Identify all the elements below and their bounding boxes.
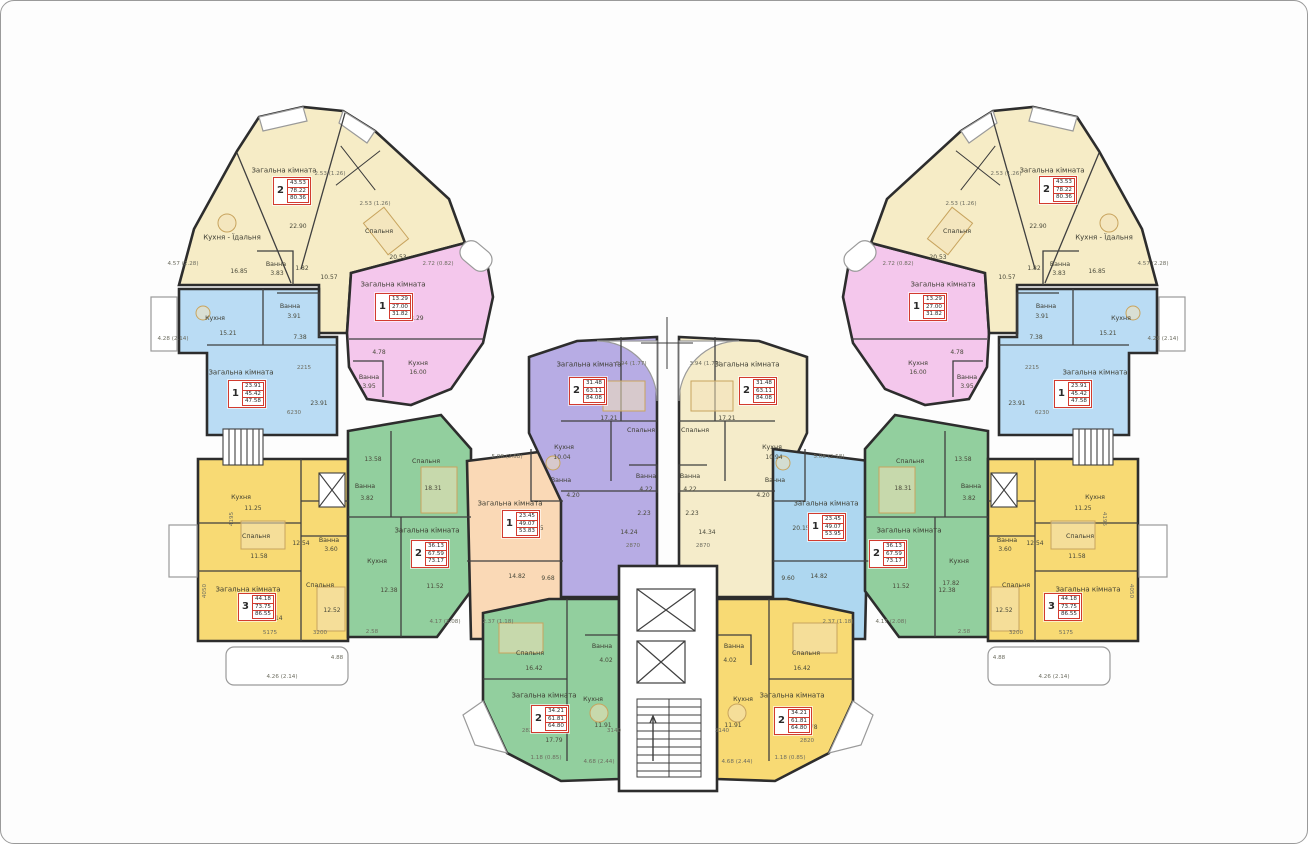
dimension-label: 2215 <box>1025 366 1039 372</box>
room-label: Загальна кімната <box>876 528 941 535</box>
room-label: Кухня - Їдальня <box>203 235 261 242</box>
dimension-label: 6230 <box>287 411 301 417</box>
area-label: 12.54 <box>292 541 309 547</box>
area-label: 3.91 <box>287 314 300 320</box>
apartment-rooms-count: 2 <box>275 179 286 203</box>
room-label: Кухня <box>908 361 928 367</box>
apartment-areas: 34.2161.8164.80 <box>545 707 567 731</box>
area-label: 16.00 <box>409 370 426 376</box>
apartment-info-box: 344.1873.7586.55 <box>238 593 276 621</box>
room-label: Ванна <box>280 304 300 310</box>
area-label: 3.82 <box>360 496 373 502</box>
area-label: 14.82 <box>508 574 525 580</box>
dimension-label: 3.94 (1.77) <box>689 362 720 368</box>
apartment-rooms-count: 1 <box>504 512 515 536</box>
area-label: 3.83 <box>270 271 283 277</box>
area-label: 15.21 <box>1099 331 1116 337</box>
room-label: Ванна <box>957 375 977 381</box>
room-label: Спальня <box>792 651 820 657</box>
area-label: 16.42 <box>793 666 810 672</box>
apartment-info-box: 231.4863.1184.08 <box>739 377 777 405</box>
area-label: 10.57 <box>998 275 1015 281</box>
area-label: 2.23 <box>685 511 698 517</box>
dimension-label: 5175 <box>1059 631 1073 637</box>
area-label: 4.78 <box>372 350 385 356</box>
room-label: Ванна <box>266 262 286 268</box>
apartment-info-box: 123.9145.4247.58 <box>228 380 266 408</box>
dimension-label: 6230 <box>1035 411 1049 417</box>
area-label: 11.25 <box>1074 506 1091 512</box>
apartment-rooms-count: 2 <box>1041 178 1052 202</box>
room-label: Кухня <box>733 697 753 703</box>
apartment-areas: 23.9145.4247.58 <box>242 382 264 406</box>
apartment-rooms-count: 3 <box>1046 595 1057 619</box>
dimension-label: 4.17 (2.08) <box>875 620 906 626</box>
room-label: Кухня <box>408 361 428 367</box>
apartment-rooms-count: 2 <box>776 709 787 733</box>
dimension-label: 4.57 (2.28) <box>167 262 198 268</box>
apartment-info-box: 123.4549.0753.95 <box>808 513 846 541</box>
area-label: 3.83 <box>1052 271 1065 277</box>
area-label: 13.58 <box>954 457 971 463</box>
apartment-rooms-count: 1 <box>230 382 241 406</box>
dimension-label: 4195 <box>1100 512 1106 526</box>
room-label: Ванна <box>359 375 379 381</box>
room-label: Спальня <box>1066 534 1094 540</box>
apartment-area-value: 53.95 <box>822 530 844 539</box>
room-label: Спальня <box>306 583 334 589</box>
apartment-info-box: 113.2927.0031.82 <box>375 293 413 321</box>
room-label: Кухня <box>554 445 574 451</box>
apartment-rooms-count: 2 <box>533 707 544 731</box>
area-label: 12.52 <box>323 608 340 614</box>
area-label: 23.91 <box>1008 401 1025 407</box>
area-label: 16.85 <box>230 269 247 275</box>
apartment-rooms-count: 2 <box>871 542 882 566</box>
floor-plan-canvas: Загальна кімнатаКухня - ЇдальняСпальня16… <box>0 0 1308 844</box>
dimension-label: 5175 <box>263 631 277 637</box>
room-label: Ванна <box>355 484 375 490</box>
dimension-label: 2.53 (1.26) <box>990 172 1021 178</box>
apartment-areas: 23.4549.0753.83 <box>516 512 538 536</box>
room-label: Спальня <box>1002 583 1030 589</box>
apartment-area-value: 84.08 <box>583 394 605 403</box>
area-label: 11.52 <box>426 584 443 590</box>
apartment-info-box: 113.2927.0031.82 <box>909 293 947 321</box>
dimension-label: 3200 <box>313 631 327 637</box>
area-label: 20.53 <box>929 255 946 261</box>
apartment-area-value: 47.58 <box>1068 397 1090 406</box>
apartment-info-box: 236.1367.5973.17 <box>411 540 449 568</box>
apartment-area-value: 80.36 <box>287 194 309 203</box>
area-label: 22.90 <box>289 224 306 230</box>
room-label: Ванна <box>961 484 981 490</box>
dimension-label: 5.08 (2.58) <box>491 455 522 461</box>
apartment-areas: 36.1367.5973.17 <box>883 542 905 566</box>
apartment-area-value: 64.80 <box>545 722 567 731</box>
area-label: 4.22 <box>683 487 696 493</box>
area-label: 4.02 <box>723 658 736 664</box>
area-label: 16.85 <box>1088 269 1105 275</box>
apartment-rooms-count: 1 <box>1056 382 1067 406</box>
area-label: 3.60 <box>998 547 1011 553</box>
dimension-label: 4.26 (2.14) <box>266 675 297 681</box>
room-label: Спальня <box>896 459 924 465</box>
room-label: Загальна кімната <box>511 693 576 700</box>
room-label: Загальна кімната <box>360 282 425 289</box>
apartment-areas: 31.4863.1184.08 <box>583 379 605 403</box>
room-label: Ванна <box>997 538 1017 544</box>
dimension-label: 2.58 <box>958 630 970 636</box>
dimension-label: 2870 <box>626 544 640 550</box>
area-label: 18.31 <box>424 486 441 492</box>
room-label: Кухня <box>1111 316 1131 322</box>
apartment-area-value: 31.82 <box>389 310 411 319</box>
apartment-info-box: 234.2161.8164.80 <box>774 707 812 735</box>
apartment-info-box: 231.4863.1184.08 <box>569 377 607 405</box>
area-label: 16.00 <box>909 370 926 376</box>
dimension-label: 2.37 (1.18) <box>482 620 513 626</box>
apartment-area-value: 86.55 <box>1058 610 1080 619</box>
area-label: 16.42 <box>525 666 542 672</box>
area-label: 1.82 <box>295 266 308 272</box>
room-label: Ванна <box>1036 304 1056 310</box>
apartment-area-value: 64.80 <box>788 724 810 733</box>
dimension-label: 4050 <box>1127 584 1133 598</box>
area-label: 12.38 <box>380 588 397 594</box>
room-label: Кухня - Їдальня <box>1075 235 1133 242</box>
dimension-label: 4.88 <box>331 656 343 662</box>
room-label: Спальня <box>242 534 270 540</box>
area-label: 11.25 <box>244 506 261 512</box>
dimension-label: 2.53 (1.26) <box>359 202 390 208</box>
room-label: Кухня <box>583 697 603 703</box>
dimension-label: 4.68 (2.44) <box>721 760 752 766</box>
dimension-label: 3200 <box>1009 631 1023 637</box>
room-label: Ванна <box>765 478 785 484</box>
area-label: 3.82 <box>962 496 975 502</box>
room-label: Загальна кімната <box>477 501 542 508</box>
room-label: Спальня <box>681 428 709 434</box>
apartment-info-box: 234.2161.8164.80 <box>531 705 569 733</box>
apartment-areas: 44.1873.7586.55 <box>252 595 274 619</box>
area-label: 10.94 <box>765 455 782 461</box>
dimension-label: 2870 <box>696 544 710 550</box>
area-label: 22.90 <box>1029 224 1046 230</box>
room-label: Загальна кімната <box>910 282 975 289</box>
area-label: 17.21 <box>718 416 735 422</box>
apartment-areas: 23.4549.0753.95 <box>822 515 844 539</box>
apartment-info-box: 243.5378.2280.36 <box>1039 176 1077 204</box>
room-label: Кухня <box>1085 495 1105 501</box>
room-label: Спальня <box>412 459 440 465</box>
room-label: Кухня <box>205 316 225 322</box>
apartment-rooms-count: 3 <box>240 595 251 619</box>
room-label: Загальна кімната <box>1062 370 1127 377</box>
room-label: Кухня <box>231 495 251 501</box>
apartment-areas: 31.4863.1184.08 <box>753 379 775 403</box>
room-label: Спальня <box>516 651 544 657</box>
dimension-label: 1.18 (0.85) <box>774 756 805 762</box>
area-label: 1.82 <box>1027 266 1040 272</box>
room-label: Загальна кімната <box>251 168 316 175</box>
dimension-label: 4050 <box>203 584 209 598</box>
area-label: 12.54 <box>1026 541 1043 547</box>
apartment-areas: 44.1873.7586.55 <box>1058 595 1080 619</box>
room-label: Ванна <box>592 644 612 650</box>
room-label: Ванна <box>724 644 744 650</box>
apartment-area-value: 47.58 <box>242 397 264 406</box>
area-label: 3.60 <box>324 547 337 553</box>
dimension-label: 4.26 (2.14) <box>1038 675 1069 681</box>
apartment-rooms-count: 1 <box>810 515 821 539</box>
apartment-areas: 43.5378.2280.36 <box>1053 178 1075 202</box>
room-label: Кухня <box>949 559 969 565</box>
apartment-area-value: 84.08 <box>753 394 775 403</box>
apartment-rooms-count: 1 <box>377 295 388 319</box>
area-label: 2.23 <box>637 511 650 517</box>
area-label: 3.95 <box>960 384 973 390</box>
apartment-info-box: 243.5378.2280.36 <box>273 177 311 205</box>
area-label: 3.91 <box>1035 314 1048 320</box>
area-label: 17.82 <box>942 581 959 587</box>
apartment-info-box: 344.1873.7586.55 <box>1044 593 1082 621</box>
area-label: 10.04 <box>553 455 570 461</box>
dimension-label: 3140 <box>607 729 621 735</box>
area-label: 23.91 <box>310 401 327 407</box>
room-label: Загальна кімната <box>714 362 779 369</box>
room-label: Ванна <box>551 478 571 484</box>
apartment-areas: 43.5378.2280.36 <box>287 179 309 203</box>
dimension-label: 3.94 (1.77) <box>615 362 646 368</box>
area-label: 11.52 <box>892 584 909 590</box>
dimension-label: 1.18 (0.85) <box>530 756 561 762</box>
area-label: 7.38 <box>1029 335 1042 341</box>
area-label: 12.38 <box>938 588 955 594</box>
apartment-areas: 23.9145.4247.58 <box>1068 382 1090 406</box>
apartment-rooms-count: 2 <box>571 379 582 403</box>
dimension-label: 2.37 (1.18) <box>822 620 853 626</box>
area-label: 20.53 <box>389 255 406 261</box>
dimension-label: 2215 <box>297 366 311 372</box>
area-label: 15.21 <box>219 331 236 337</box>
room-label: Загальна кімната <box>556 362 621 369</box>
dimension-label: 4.28 (2.14) <box>157 337 188 343</box>
dimension-label: 4.17 (2.08) <box>429 620 460 626</box>
area-label: 4.20 <box>756 493 769 499</box>
apartment-area-value: 53.83 <box>516 527 538 536</box>
area-label: 4.78 <box>950 350 963 356</box>
room-label: Загальна кімната <box>759 693 824 700</box>
dimension-label: 2.72 (0.82) <box>882 262 913 268</box>
dimension-label: 5.08 (2.58) <box>813 455 844 461</box>
area-label: 14.24 <box>620 530 637 536</box>
area-label: 11.58 <box>250 554 267 560</box>
apartment-area-value: 73.17 <box>883 557 905 566</box>
room-label: Кухня <box>762 445 782 451</box>
dimension-label: 4.68 (2.44) <box>583 760 614 766</box>
room-label: Загальна кімната <box>793 501 858 508</box>
apartment-area-value: 80.36 <box>1053 193 1075 202</box>
dimension-label: 2.53 (1.26) <box>945 202 976 208</box>
apartment-area-value: 73.17 <box>425 557 447 566</box>
area-label: 11.58 <box>1068 554 1085 560</box>
apartment-area-value: 86.55 <box>252 610 274 619</box>
apartment-areas: 36.1367.5973.17 <box>425 542 447 566</box>
room-label: Ванна <box>1050 262 1070 268</box>
apartment-info-box: 123.4549.0753.83 <box>502 510 540 538</box>
room-label: Ванна <box>319 538 339 544</box>
area-label: 4.20 <box>566 493 579 499</box>
area-label: 17.21 <box>600 416 617 422</box>
room-label: Ванна <box>680 474 700 480</box>
area-label: 14.34 <box>698 530 715 536</box>
room-label: Спальня <box>627 428 655 434</box>
area-label: 9.68 <box>541 576 554 582</box>
area-label: 9.60 <box>781 576 794 582</box>
dimension-label: 3140 <box>715 729 729 735</box>
apartment-rooms-count: 1 <box>911 295 922 319</box>
labels-layer: Загальна кімнатаКухня - ЇдальняСпальня16… <box>1 1 1307 843</box>
apartment-area-value: 31.82 <box>923 310 945 319</box>
apartment-info-box: 123.9145.4247.58 <box>1054 380 1092 408</box>
room-label: Кухня <box>367 559 387 565</box>
room-label: Загальна кімната <box>208 370 273 377</box>
room-label: Ванна <box>636 474 656 480</box>
dimension-label: 4.88 <box>993 656 1005 662</box>
dimension-label: 4.57 (2.28) <box>1137 262 1168 268</box>
apartment-rooms-count: 2 <box>741 379 752 403</box>
room-label: Загальна кімната <box>1019 168 1084 175</box>
dimension-label: 2.58 <box>366 630 378 636</box>
area-label: 14.82 <box>810 574 827 580</box>
apartment-areas: 13.2927.0031.82 <box>923 295 945 319</box>
room-label: Спальня <box>365 229 393 235</box>
area-label: 18.31 <box>894 486 911 492</box>
area-label: 17.79 <box>545 738 562 744</box>
apartment-rooms-count: 2 <box>413 542 424 566</box>
dimension-label: 4.28 (2.14) <box>1147 337 1178 343</box>
dimension-label: 2820 <box>800 739 814 745</box>
area-label: 4.02 <box>599 658 612 664</box>
room-label: Загальна кімната <box>394 528 459 535</box>
apartment-areas: 13.2927.0031.82 <box>389 295 411 319</box>
area-label: 13.58 <box>364 457 381 463</box>
room-label: Спальня <box>943 229 971 235</box>
dimension-label: 2.53 (1.26) <box>314 172 345 178</box>
dimension-label: 2.72 (0.82) <box>422 262 453 268</box>
area-label: 3.95 <box>362 384 375 390</box>
area-label: 12.52 <box>995 608 1012 614</box>
area-label: 4.22 <box>639 487 652 493</box>
apartment-areas: 34.2161.8164.80 <box>788 709 810 733</box>
area-label: 7.38 <box>293 335 306 341</box>
apartment-info-box: 236.1367.5973.17 <box>869 540 907 568</box>
dimension-label: 4195 <box>230 512 236 526</box>
area-label: 10.57 <box>320 275 337 281</box>
